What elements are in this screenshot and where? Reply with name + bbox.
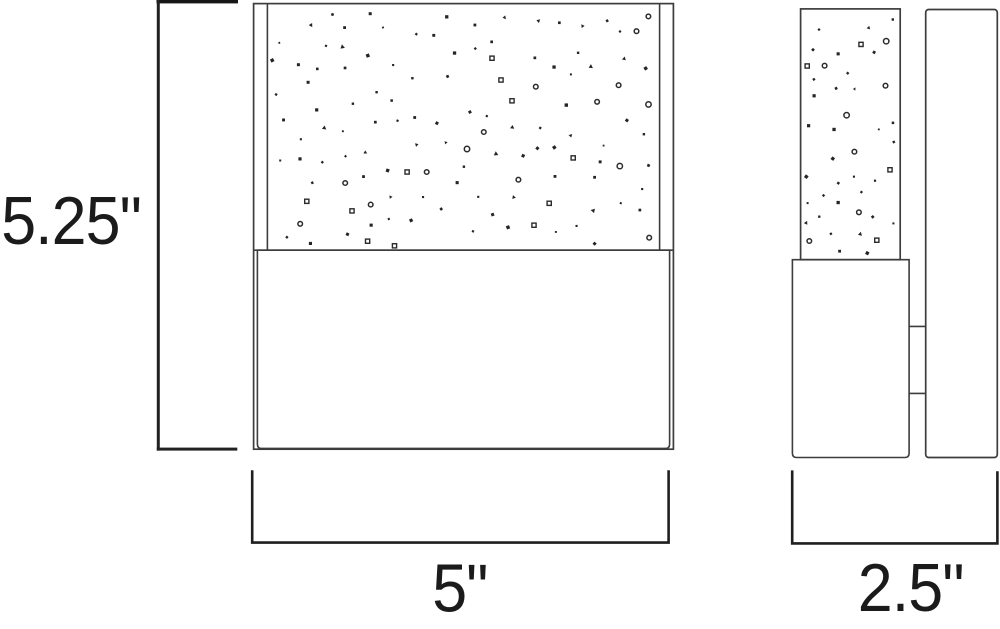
svg-text:5.25": 5.25"	[1, 183, 141, 259]
svg-text:5": 5"	[432, 550, 487, 626]
svg-text:2.5": 2.5"	[858, 550, 964, 626]
